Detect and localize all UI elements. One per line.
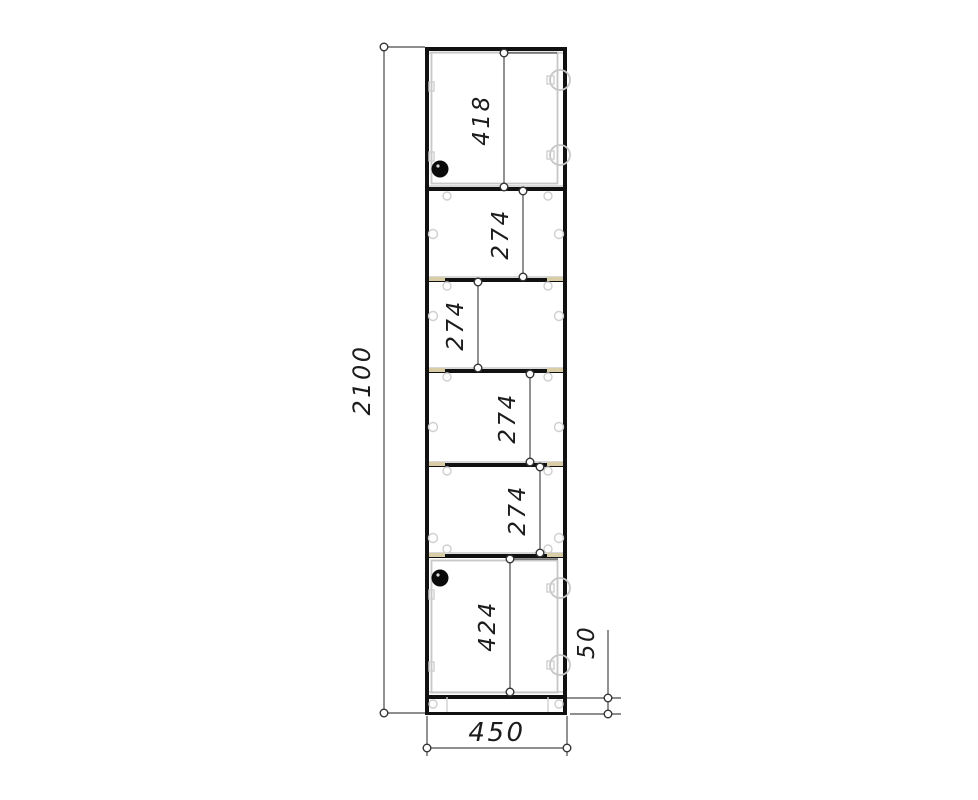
- bottom-shelf-board: [429, 695, 563, 699]
- top-panel: [425, 47, 567, 51]
- dim-endpoint: [506, 555, 514, 563]
- cam-lock: [443, 545, 451, 553]
- dim-endpoint: [536, 549, 544, 557]
- shelf-support: [429, 277, 445, 281]
- dim-label-bottom-section: 424: [475, 600, 501, 651]
- dim-endpoint: [526, 458, 534, 466]
- shelf-support: [429, 368, 445, 372]
- shelf-3: [429, 368, 563, 373]
- cam-lock: [443, 282, 451, 290]
- dimension-shelf-section-4: 274: [505, 463, 544, 557]
- shelf-support: [547, 553, 563, 557]
- cam-lock: [544, 282, 552, 290]
- shelf-support: [429, 462, 445, 466]
- cam-lock: [544, 192, 552, 200]
- dim-label-overall-width: 450: [468, 718, 525, 748]
- dim-label-top-section: 418: [469, 94, 495, 145]
- pin-hole: [429, 534, 438, 543]
- dimension-plinth: 50: [567, 625, 621, 718]
- dimension-shelf-section-2: 274: [443, 278, 482, 372]
- shelf-support: [547, 277, 563, 281]
- dim-endpoint: [604, 710, 612, 718]
- dim-endpoint: [604, 694, 612, 702]
- door-handle-knob: [432, 161, 449, 178]
- shelf-2-board: [429, 278, 563, 282]
- dimension-shelf-section-1: 274: [488, 187, 527, 281]
- cam-lock: [544, 373, 552, 381]
- knob-highlight: [436, 573, 439, 576]
- shelf-support: [547, 462, 563, 466]
- leg-fitting: [429, 700, 437, 708]
- shelf-2: [429, 277, 563, 282]
- leg-fitting: [555, 700, 563, 708]
- dim-endpoint: [474, 278, 482, 286]
- shelf-3-board: [429, 369, 563, 373]
- dim-endpoint: [380, 709, 388, 717]
- dim-label-shelf-1: 274: [488, 208, 514, 259]
- dim-label-overall-height: 2100: [348, 344, 376, 415]
- dimension-bottom-section: 424: [475, 555, 558, 696]
- door-handle-bottom-icon: [432, 570, 449, 587]
- dim-label-shelf-3: 274: [495, 392, 521, 443]
- door-handle-top-icon: [432, 161, 449, 178]
- shelf-1-board: [429, 187, 563, 191]
- dim-label-shelf-4: 274: [505, 484, 531, 535]
- pin-hole: [429, 312, 438, 321]
- dim-endpoint: [536, 463, 544, 471]
- dim-endpoint: [506, 688, 514, 696]
- dim-endpoint: [380, 43, 388, 51]
- knob-highlight: [436, 164, 439, 167]
- dimension-shelf-section-3: 274: [495, 370, 534, 466]
- dim-endpoint: [563, 744, 571, 752]
- dimension-top-section: 418: [469, 49, 557, 191]
- cam-lock: [443, 192, 451, 200]
- dim-endpoint: [519, 187, 527, 195]
- dim-endpoint: [423, 744, 431, 752]
- pin-hole: [555, 534, 564, 543]
- dimension-overall-height: 2100: [348, 43, 425, 717]
- pin-hole: [555, 423, 564, 432]
- pin-hole: [429, 230, 438, 239]
- dim-endpoint: [519, 273, 527, 281]
- shelf-1: [429, 186, 563, 191]
- dim-endpoint: [500, 183, 508, 191]
- dim-endpoint: [474, 364, 482, 372]
- cam-lock: [544, 545, 552, 553]
- side-panel-left: [425, 47, 429, 715]
- dim-label-plinth: 50: [574, 625, 600, 659]
- door-handle-knob: [432, 570, 449, 587]
- cabinet-dimension-drawing: 2100 418 274 274 274 274: [0, 0, 978, 800]
- dimension-overall-width: 450: [423, 716, 571, 756]
- dim-endpoint: [526, 370, 534, 378]
- cam-lock: [443, 467, 451, 475]
- shelf-support: [429, 553, 445, 557]
- cam-lock: [544, 467, 552, 475]
- pin-hole: [555, 230, 564, 239]
- dim-label-shelf-2: 274: [443, 299, 469, 350]
- drawing-canvas: 2100 418 274 274 274 274: [0, 0, 978, 800]
- pin-hole: [429, 423, 438, 432]
- cam-lock: [443, 373, 451, 381]
- dim-endpoint: [500, 49, 508, 57]
- plinth-bottom-edge: [425, 712, 567, 715]
- shelf-support: [547, 368, 563, 372]
- pin-hole: [555, 312, 564, 321]
